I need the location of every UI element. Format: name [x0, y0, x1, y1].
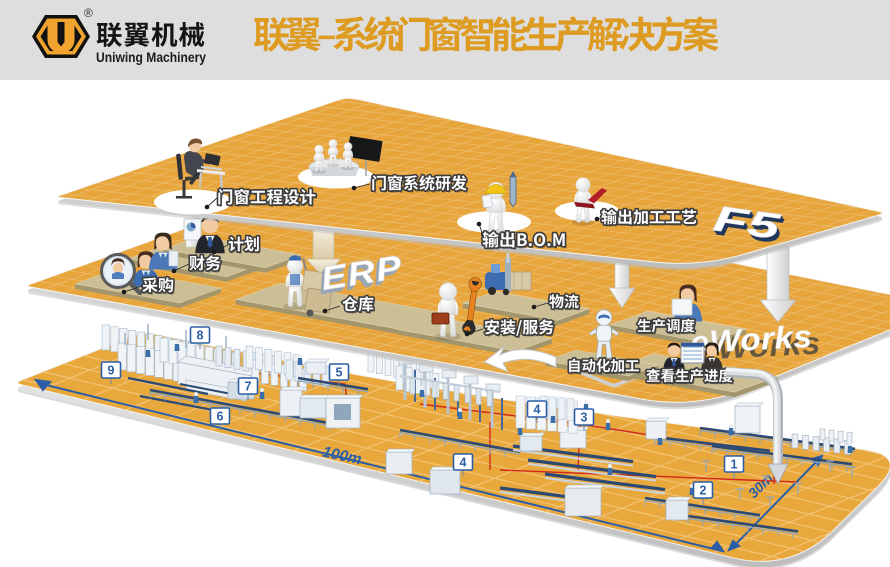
svg-text:7: 7 [245, 380, 252, 394]
svg-text:2: 2 [700, 484, 707, 498]
svg-text:4: 4 [534, 403, 541, 417]
svg-text:9: 9 [108, 364, 115, 378]
svg-text:4: 4 [460, 456, 467, 470]
svg-text:®: ® [84, 6, 93, 20]
svg-text:8: 8 [197, 329, 204, 343]
svg-text:1: 1 [731, 458, 738, 472]
svg-text:Uniwing Machinery: Uniwing Machinery [96, 50, 206, 65]
svg-text:6: 6 [217, 410, 224, 424]
svg-text:3: 3 [581, 411, 588, 425]
svg-text:5: 5 [336, 366, 343, 380]
